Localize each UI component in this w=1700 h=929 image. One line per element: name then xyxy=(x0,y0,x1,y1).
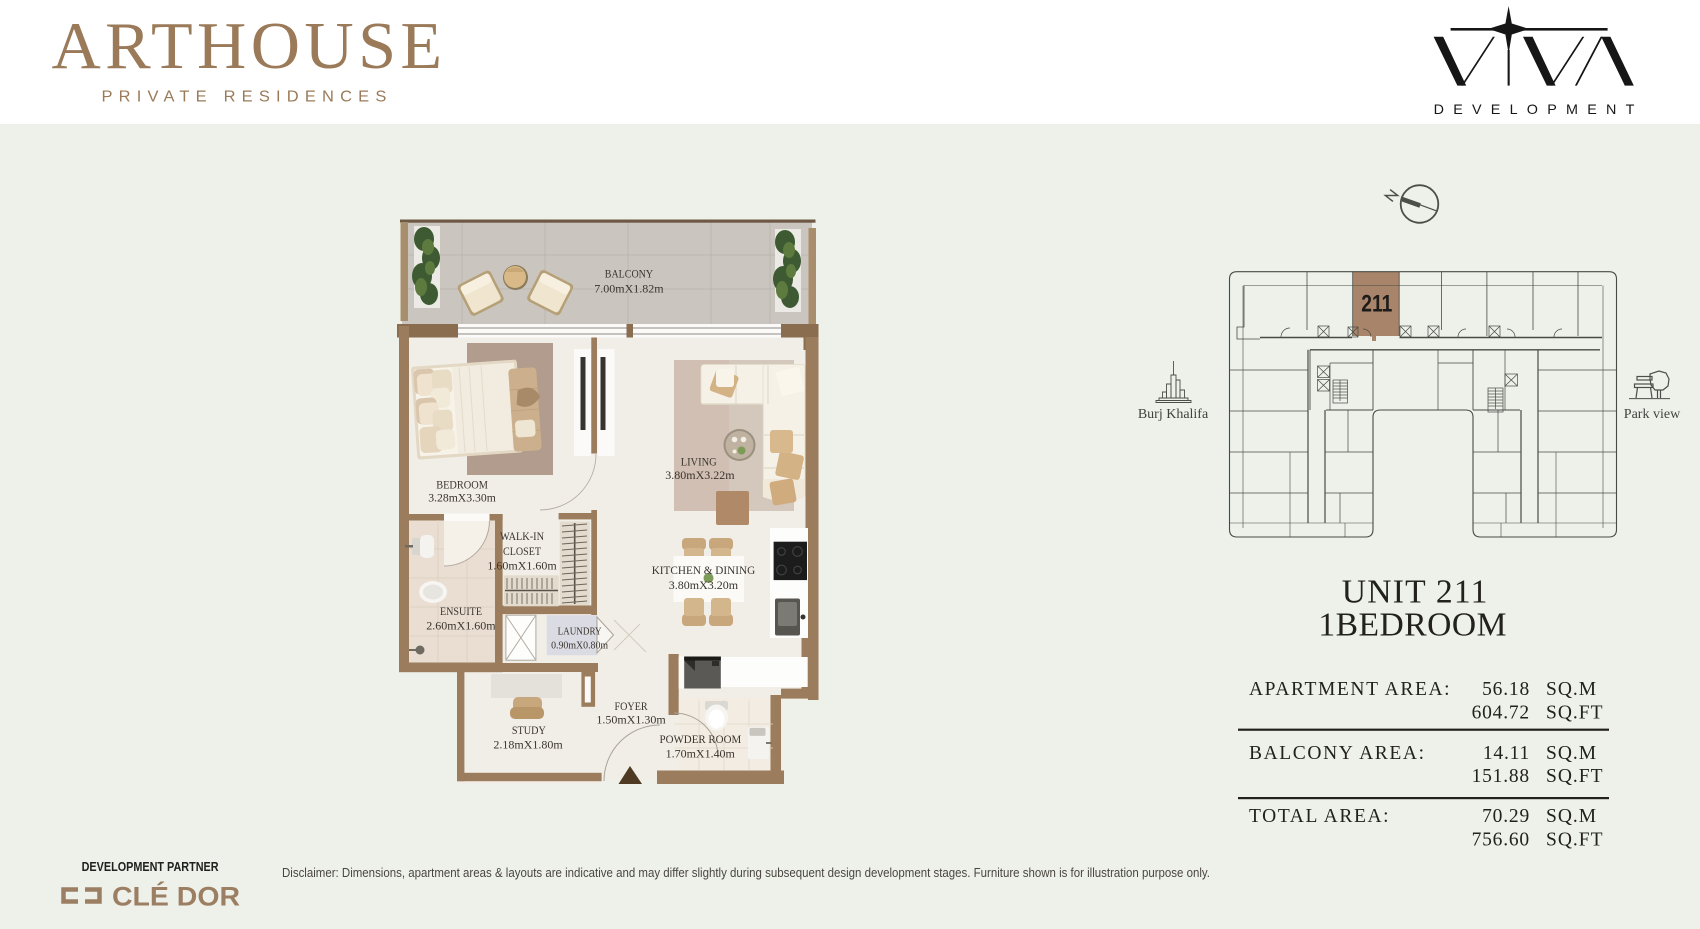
svg-text:2.18mX1.80m: 2.18mX1.80m xyxy=(493,737,563,751)
svg-text:SQ.FT: SQ.FT xyxy=(1546,766,1604,787)
svg-text:70.29: 70.29 xyxy=(1482,806,1530,827)
svg-text:DEVELOPMENT PARTNER: DEVELOPMENT PARTNER xyxy=(82,859,219,874)
svg-text:POWDER ROOM: POWDER ROOM xyxy=(660,734,742,746)
svg-text:FOYER: FOYER xyxy=(615,701,648,713)
svg-text:3.80mX3.20m: 3.80mX3.20m xyxy=(669,578,739,592)
svg-text:BALCONY: BALCONY xyxy=(605,268,654,280)
svg-text:1.50mX1.30m: 1.50mX1.30m xyxy=(596,713,666,727)
svg-text:SQ.M: SQ.M xyxy=(1546,743,1597,764)
svg-text:CLÉ DOR: CLÉ DOR xyxy=(112,881,240,912)
svg-text:TOTAL AREA:: TOTAL AREA: xyxy=(1249,806,1390,827)
svg-text:STUDY: STUDY xyxy=(512,725,547,737)
svg-text:56.18: 56.18 xyxy=(1482,679,1530,700)
svg-text:DEVELOPMENT: DEVELOPMENT xyxy=(1434,101,1644,117)
svg-text:ENSUITE: ENSUITE xyxy=(440,606,482,618)
svg-text:Burj Khalifa: Burj Khalifa xyxy=(1138,407,1209,422)
svg-text:3.80mX3.22m: 3.80mX3.22m xyxy=(665,468,735,482)
svg-text:14.11: 14.11 xyxy=(1483,743,1530,764)
svg-text:PRIVATE RESIDENCES: PRIVATE RESIDENCES xyxy=(102,88,393,105)
svg-text:UNIT 211: UNIT 211 xyxy=(1342,574,1489,611)
svg-text:604.72: 604.72 xyxy=(1472,703,1530,724)
svg-text:0.90mX0.80m: 0.90mX0.80m xyxy=(551,640,608,651)
svg-text:BALCONY AREA:: BALCONY AREA: xyxy=(1249,743,1426,764)
svg-text:SQ.FT: SQ.FT xyxy=(1546,703,1604,724)
svg-text:211: 211 xyxy=(1361,290,1392,317)
svg-text:WALK-IN: WALK-IN xyxy=(500,531,545,543)
svg-text:1BEDROOM: 1BEDROOM xyxy=(1318,607,1507,644)
svg-text:1.60mX1.60m: 1.60mX1.60m xyxy=(487,558,557,572)
svg-text:2.60mX1.60m: 2.60mX1.60m xyxy=(426,619,496,633)
svg-text:Disclaimer: Dimensions, apartm: Disclaimer: Dimensions, apartment areas … xyxy=(282,866,1210,880)
svg-text:LIVING: LIVING xyxy=(681,457,717,469)
svg-text:LAUNDRY: LAUNDRY xyxy=(558,627,602,638)
svg-text:KITCHEN & DINING: KITCHEN & DINING xyxy=(652,565,756,577)
svg-text:Park view: Park view xyxy=(1624,407,1681,422)
svg-text:CLOSET: CLOSET xyxy=(503,546,541,558)
svg-text:151.88: 151.88 xyxy=(1472,766,1530,787)
svg-text:SQ.FT: SQ.FT xyxy=(1546,830,1604,851)
svg-text:756.60: 756.60 xyxy=(1472,830,1530,851)
svg-text:7.00mX1.82m: 7.00mX1.82m xyxy=(594,282,664,296)
svg-text:1.70mX1.40m: 1.70mX1.40m xyxy=(666,746,736,760)
svg-text:3.28mX3.30m: 3.28mX3.30m xyxy=(428,490,496,504)
svg-text:SQ.M: SQ.M xyxy=(1546,679,1597,700)
svg-text:SQ.M: SQ.M xyxy=(1546,806,1597,827)
svg-text:ARTHOUSE: ARTHOUSE xyxy=(52,9,447,83)
svg-text:APARTMENT AREA:: APARTMENT AREA: xyxy=(1249,679,1451,700)
